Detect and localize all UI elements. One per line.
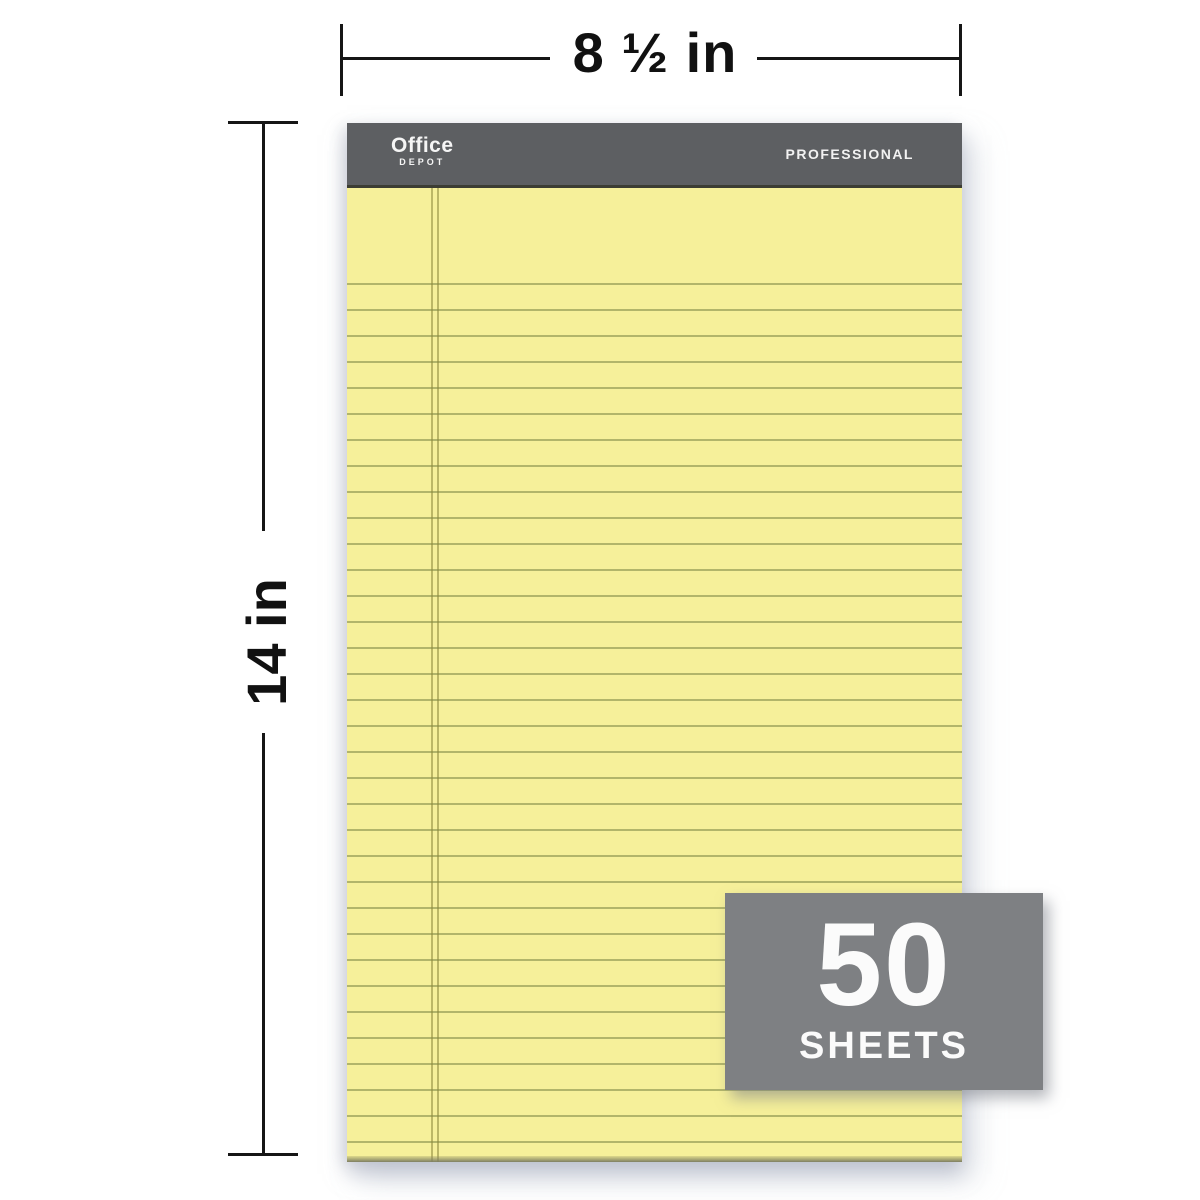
height-dimension-bottom-segment: [262, 733, 265, 1153]
sheet-count-value: 50: [816, 915, 951, 1015]
brand-logo: Office DEPOT: [391, 135, 454, 167]
height-dimension-bottom-cap: [228, 1153, 298, 1156]
margin-line-outer: [431, 188, 433, 1162]
sheet-count-label: SHEETS: [799, 1025, 969, 1068]
sheet-stack-edge: [347, 1156, 962, 1162]
width-dimension-label: 8 ½ in: [545, 20, 765, 85]
professional-label: PROFESSIONAL: [786, 146, 914, 162]
margin-line-inner: [437, 188, 439, 1162]
brand-logo-depot: DEPOT: [391, 157, 454, 167]
brand-logo-office: Office: [391, 135, 454, 157]
product-image-canvas: 8 ½ in 14 in Office DEPOT PROFESSIONAL 5…: [0, 0, 1200, 1200]
width-dimension-left-cap: [340, 24, 343, 96]
sheet-count-badge: 50 SHEETS: [725, 893, 1043, 1090]
width-dimension-left-segment: [343, 57, 550, 60]
height-dimension-top-segment: [262, 124, 265, 531]
width-dimension-right-segment: [757, 57, 959, 60]
height-dimension-label: 14 in: [237, 572, 297, 712]
pad-header-band: Office DEPOT PROFESSIONAL: [347, 123, 962, 188]
width-dimension-right-cap: [959, 24, 962, 96]
